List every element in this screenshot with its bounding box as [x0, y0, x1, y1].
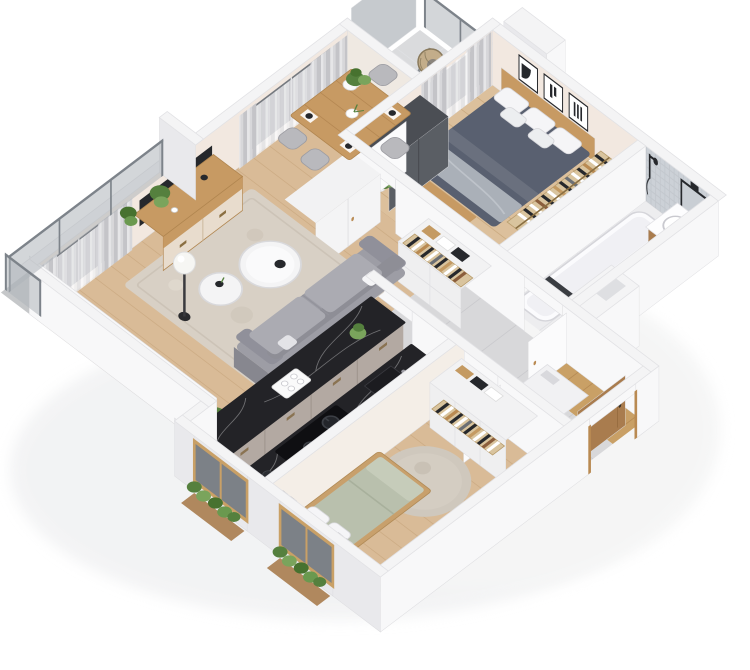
apartment-floorplan-scene [0, 0, 750, 670]
lamp-globe [173, 252, 195, 274]
isometric-render [0, 0, 750, 670]
